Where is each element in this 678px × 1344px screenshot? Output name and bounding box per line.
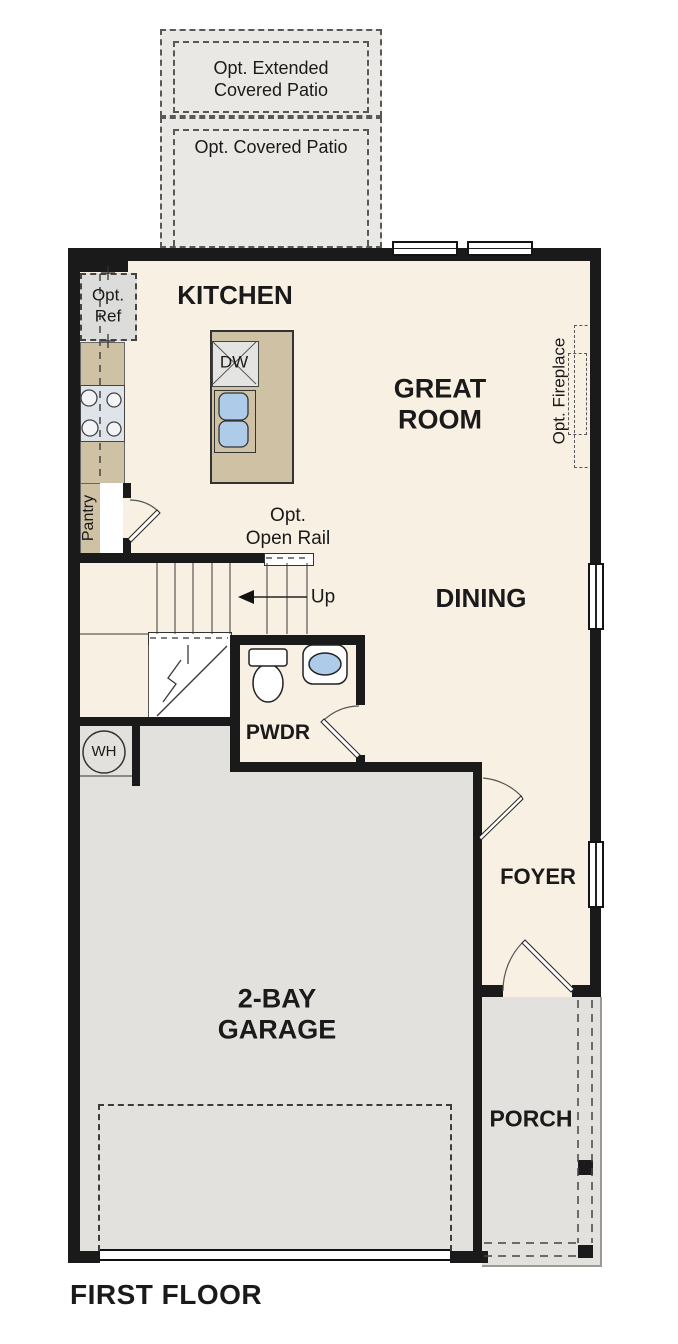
opt-fireplace-label: Opt. Fireplace: [550, 338, 571, 445]
window-great-room-2: [467, 241, 533, 256]
sink-cabinet: [214, 390, 256, 453]
room-label-porch: PORCH: [489, 1106, 572, 1133]
plan-title: FIRST FLOOR: [70, 1279, 262, 1311]
room-label-garage: 2-BAY GARAGE: [218, 984, 337, 1047]
wall-pwdr-top: [230, 635, 365, 645]
dw-label: DW: [220, 353, 248, 374]
wall-wh-closet: [132, 726, 140, 786]
porch-post-corner: [578, 1245, 593, 1258]
up-label: Up: [311, 585, 335, 608]
room-label-pwdr: PWDR: [246, 721, 310, 745]
room-label-kitchen: KITCHEN: [177, 280, 293, 310]
porch-post-mid: [578, 1160, 593, 1175]
wall-kitchen-stair: [68, 553, 264, 563]
wall-foyer-bottom-left: [473, 985, 503, 997]
garage-door-threshold: [100, 1249, 450, 1261]
pantry-label: Pantry: [79, 495, 99, 541]
window-pane-line: [595, 565, 597, 628]
floor-plan: Opt. Extended Covered Patio Opt. Covered…: [0, 0, 678, 1344]
patio-extended-label: Opt. Extended Covered Patio: [213, 58, 328, 102]
wall-top-left-block: [68, 248, 128, 272]
wall-pantry-stub-top: [123, 483, 131, 498]
opt-ref-label: Opt. Ref: [92, 285, 124, 326]
room-label-great-room: GREAT ROOM: [394, 374, 487, 437]
pantry-interior: [100, 483, 123, 553]
wall-pwdr-right: [356, 635, 365, 705]
opt-open-rail-label: Opt. Open Rail: [246, 504, 331, 550]
window-pane-line: [595, 843, 597, 906]
window-pane-line: [469, 248, 531, 250]
wall-hall: [230, 762, 482, 772]
window-foyer: [588, 841, 604, 908]
wh-closet-floor-line: [80, 775, 132, 777]
wall-pwdr-left: [230, 635, 240, 772]
wall-foyer-bottom-right: [572, 985, 601, 997]
patio-covered-label: Opt. Covered Patio: [194, 137, 347, 159]
wall-stair-garage: [68, 717, 230, 726]
stair-lower-run: [148, 645, 231, 717]
wh-label: WH: [92, 743, 117, 761]
wall-pantry-stub-bottom: [123, 538, 131, 553]
wall-garage-bottom-right: [450, 1251, 488, 1263]
window-dining: [588, 563, 604, 630]
wall-left: [68, 248, 80, 1263]
stair-rail-top: [264, 553, 314, 566]
window-pane-line: [394, 248, 456, 250]
fireplace-outline-inner: [568, 353, 587, 435]
room-label-foyer: FOYER: [500, 864, 576, 890]
window-great-room-1: [392, 241, 458, 256]
garage-door-dashed-outline: [98, 1104, 452, 1251]
wall-garage-bottom-left: [68, 1251, 100, 1263]
room-label-dining: DINING: [436, 583, 527, 613]
range: [80, 385, 125, 442]
wall-garage-foyer: [473, 772, 482, 1263]
